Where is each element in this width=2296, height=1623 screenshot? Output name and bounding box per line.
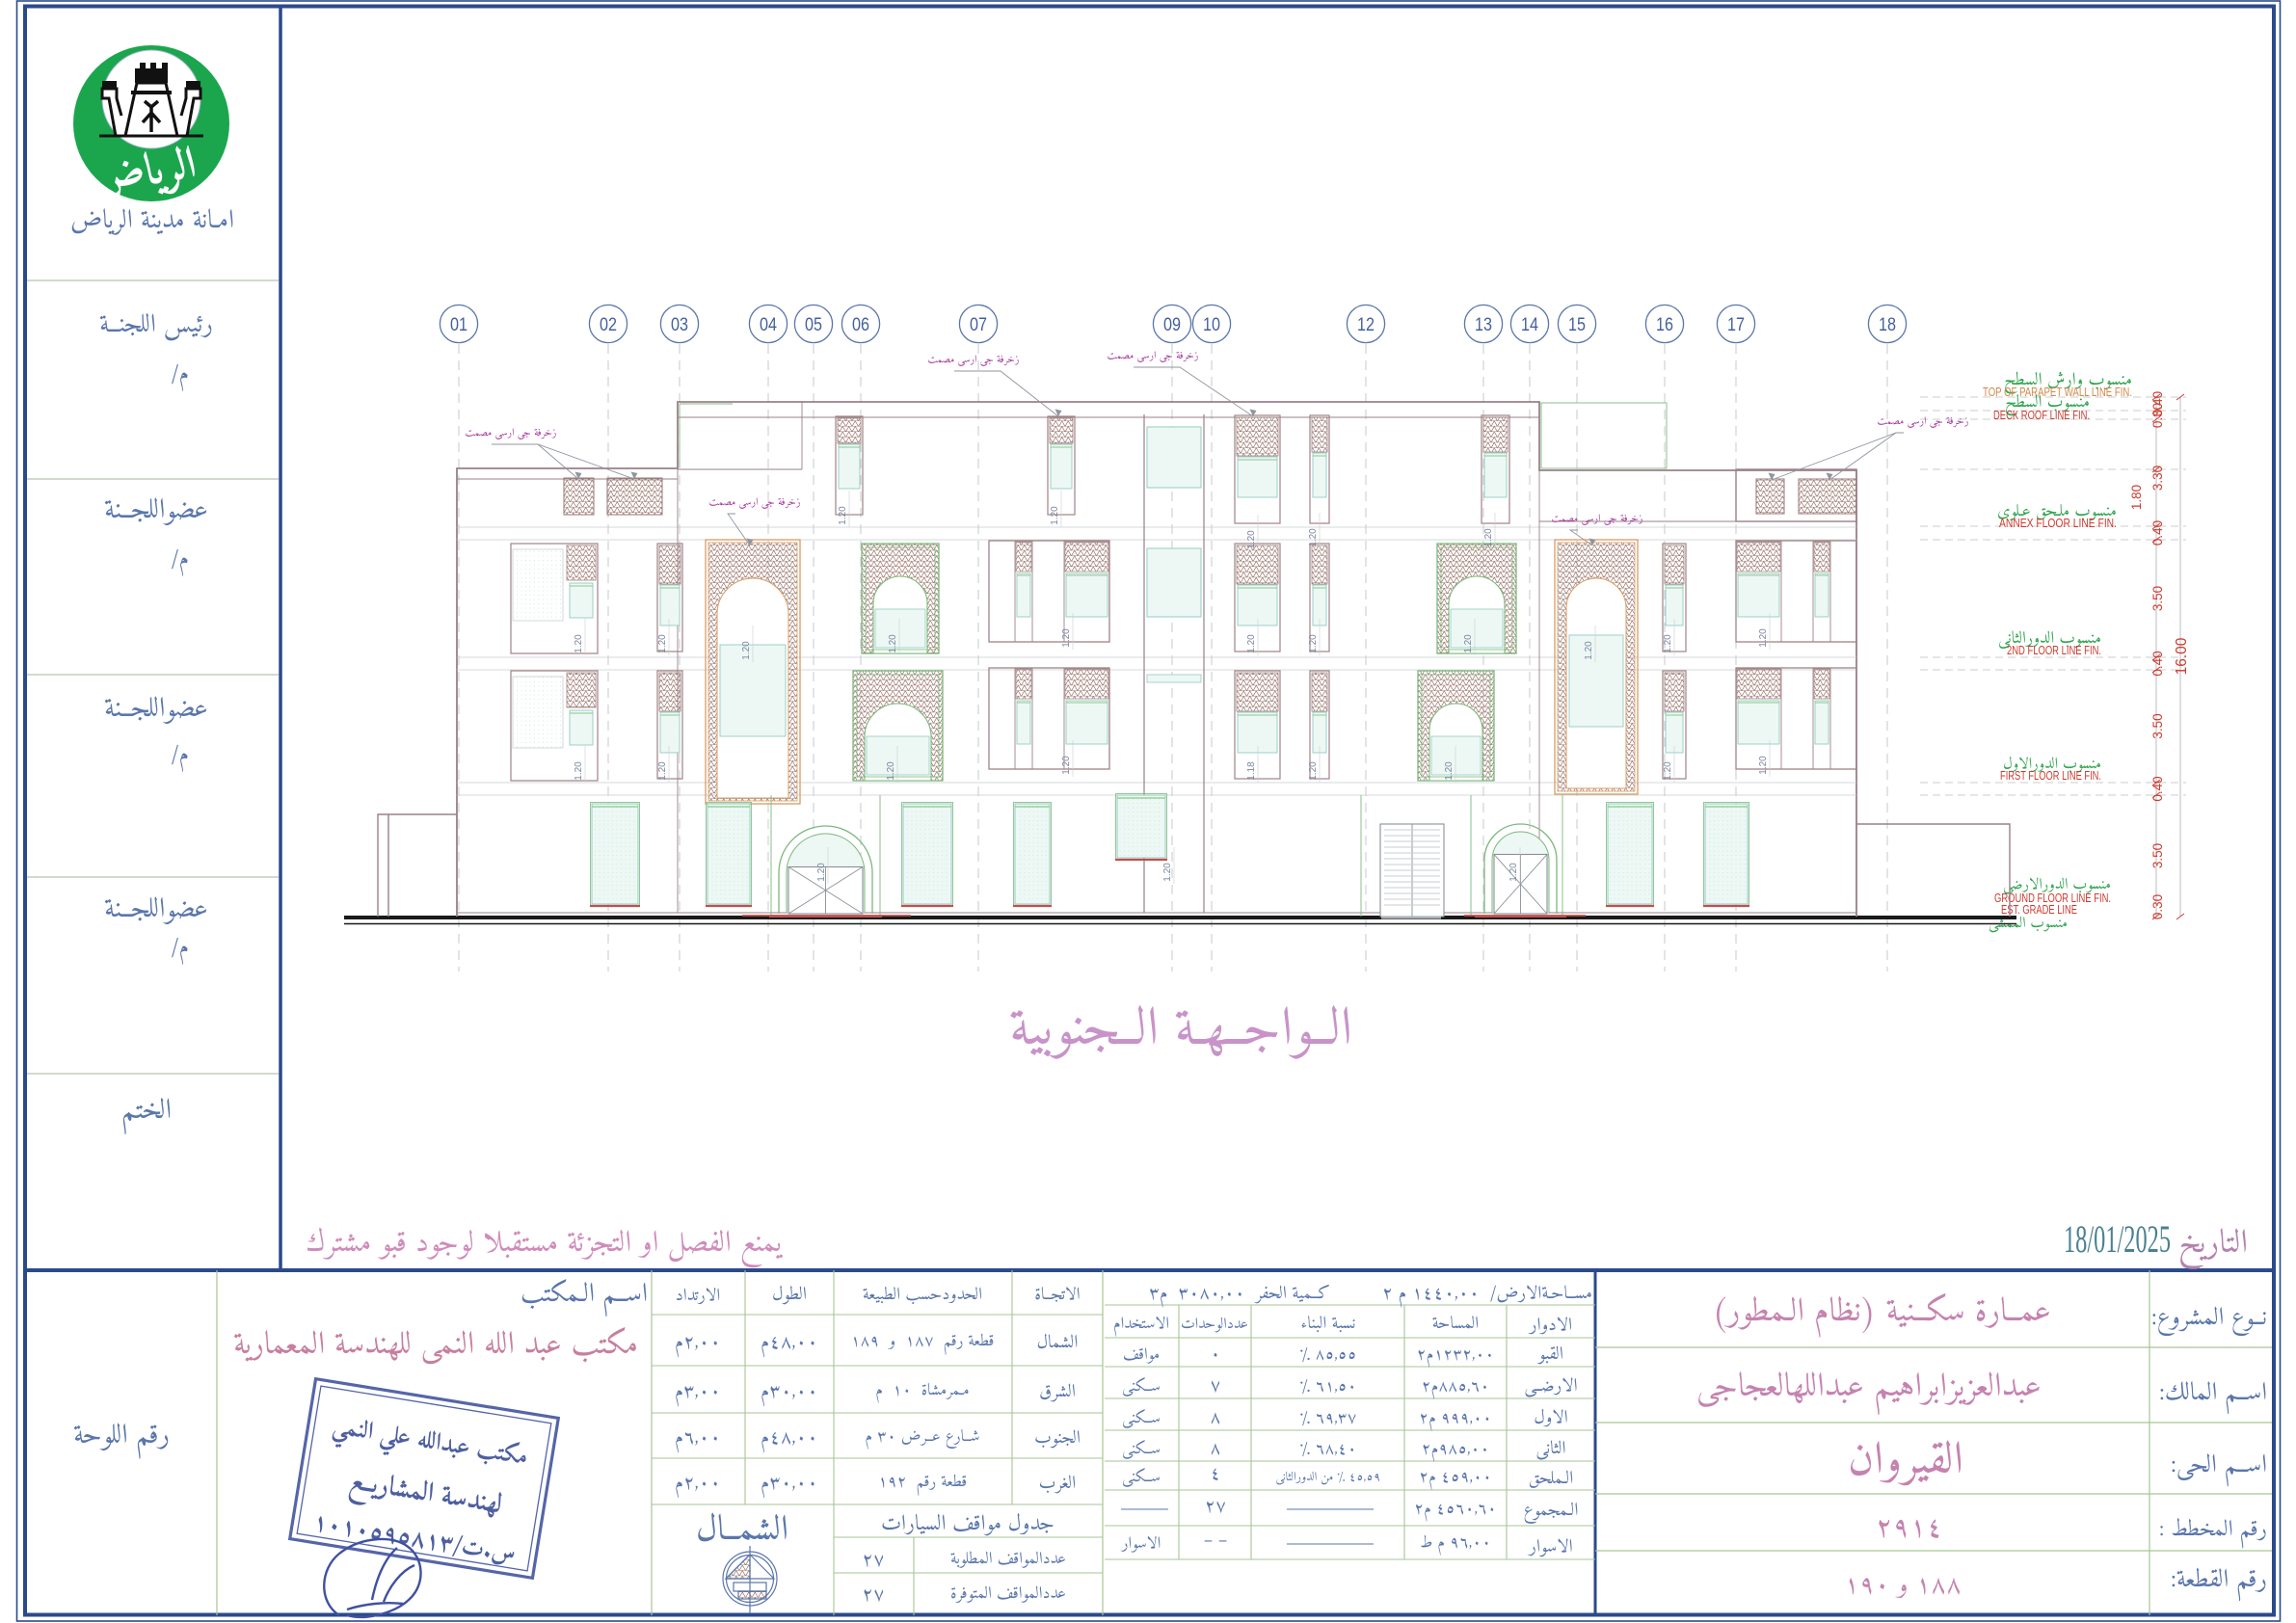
svg-text:3.30: 3.30 — [2150, 466, 2165, 491]
svg-text:TOP OF PARAPET WALL LINE FIN.: TOP OF PARAPET WALL LINE FIN. — [1983, 386, 2132, 399]
svg-text:1.20: 1.20 — [1584, 641, 1594, 660]
svg-text:10: 10 — [1203, 315, 1220, 335]
svg-text:1.20: 1.20 — [838, 506, 848, 525]
svg-text:1.20: 1.20 — [1061, 756, 1072, 775]
svg-text:2ND FLOOR LINE FIN.: 2ND FLOOR LINE FIN. — [2007, 644, 2101, 657]
svg-text:1.20: 1.20 — [1508, 863, 1519, 882]
svg-text:DECK ROOF LINE FIN.: DECK ROOF LINE FIN. — [1993, 409, 2090, 422]
svg-text:1.20: 1.20 — [1246, 634, 1257, 653]
svg-text:14: 14 — [1521, 315, 1538, 335]
svg-text:1.20: 1.20 — [1162, 863, 1173, 882]
svg-text:1.20: 1.20 — [1050, 506, 1060, 525]
svg-text:1.20: 1.20 — [1308, 634, 1319, 653]
svg-text:EST. GRADE LINE: EST. GRADE LINE — [2001, 903, 2077, 917]
svg-text:02: 02 — [600, 315, 617, 335]
svg-text:1.18: 1.18 — [1246, 761, 1257, 781]
svg-text:1.20: 1.20 — [1483, 528, 1494, 547]
svg-text:1.20: 1.20 — [1246, 530, 1257, 549]
svg-text:0.30: 0.30 — [2150, 403, 2165, 428]
svg-text:16.00: 16.00 — [2174, 637, 2190, 675]
svg-text:1.20: 1.20 — [574, 761, 584, 781]
svg-text:3.50: 3.50 — [2150, 843, 2165, 868]
svg-text:0.30: 0.30 — [2150, 894, 2165, 919]
svg-text:1.20: 1.20 — [886, 761, 896, 781]
svg-text:1.20: 1.20 — [1308, 528, 1319, 547]
svg-text:1.20: 1.20 — [1758, 628, 1769, 648]
svg-text:FIRST FLOOR LINE FIN.: FIRST FLOOR LINE FIN. — [2000, 769, 2101, 783]
svg-text:1.20: 1.20 — [1308, 761, 1319, 781]
svg-text:0.40: 0.40 — [2150, 776, 2165, 801]
svg-text:16: 16 — [1656, 315, 1673, 335]
svg-text:03: 03 — [671, 315, 688, 335]
svg-text:3.50: 3.50 — [2150, 713, 2165, 738]
svg-text:1.20: 1.20 — [657, 761, 668, 781]
svg-text:1.20: 1.20 — [657, 634, 668, 653]
svg-text:07: 07 — [970, 315, 987, 335]
svg-text:1.20: 1.20 — [1061, 628, 1072, 648]
svg-text:0.40: 0.40 — [2150, 651, 2165, 676]
svg-text:1.20: 1.20 — [741, 641, 752, 660]
svg-text:1.20: 1.20 — [574, 634, 584, 653]
svg-text:09: 09 — [1163, 315, 1181, 335]
svg-text:01: 01 — [450, 315, 467, 335]
svg-text:ANNEX FLOOR LINE FIN.: ANNEX FLOOR LINE FIN. — [1999, 517, 2117, 530]
svg-text:1.20: 1.20 — [1758, 756, 1769, 775]
svg-text:1.20: 1.20 — [1663, 634, 1673, 653]
svg-text:04: 04 — [760, 315, 777, 335]
svg-text:1.20: 1.20 — [1463, 634, 1474, 653]
svg-text:3.50: 3.50 — [2150, 586, 2165, 611]
svg-text:17: 17 — [1727, 315, 1745, 335]
svg-text:06: 06 — [852, 315, 869, 335]
svg-text:18: 18 — [1879, 315, 1896, 335]
svg-text:13: 13 — [1475, 315, 1492, 335]
svg-text:0.40: 0.40 — [2150, 520, 2165, 545]
svg-text:12: 12 — [1357, 315, 1375, 335]
svg-text:18/01/2025: 18/01/2025 — [2064, 1217, 2171, 1261]
svg-text:1.20: 1.20 — [816, 863, 827, 882]
svg-text:15: 15 — [1568, 315, 1586, 335]
svg-text:1.20: 1.20 — [1444, 761, 1455, 781]
svg-text:1.20: 1.20 — [1663, 761, 1673, 781]
svg-text:1.80: 1.80 — [2129, 485, 2144, 510]
svg-text:1.20: 1.20 — [888, 634, 898, 653]
svg-text:05: 05 — [805, 315, 822, 335]
